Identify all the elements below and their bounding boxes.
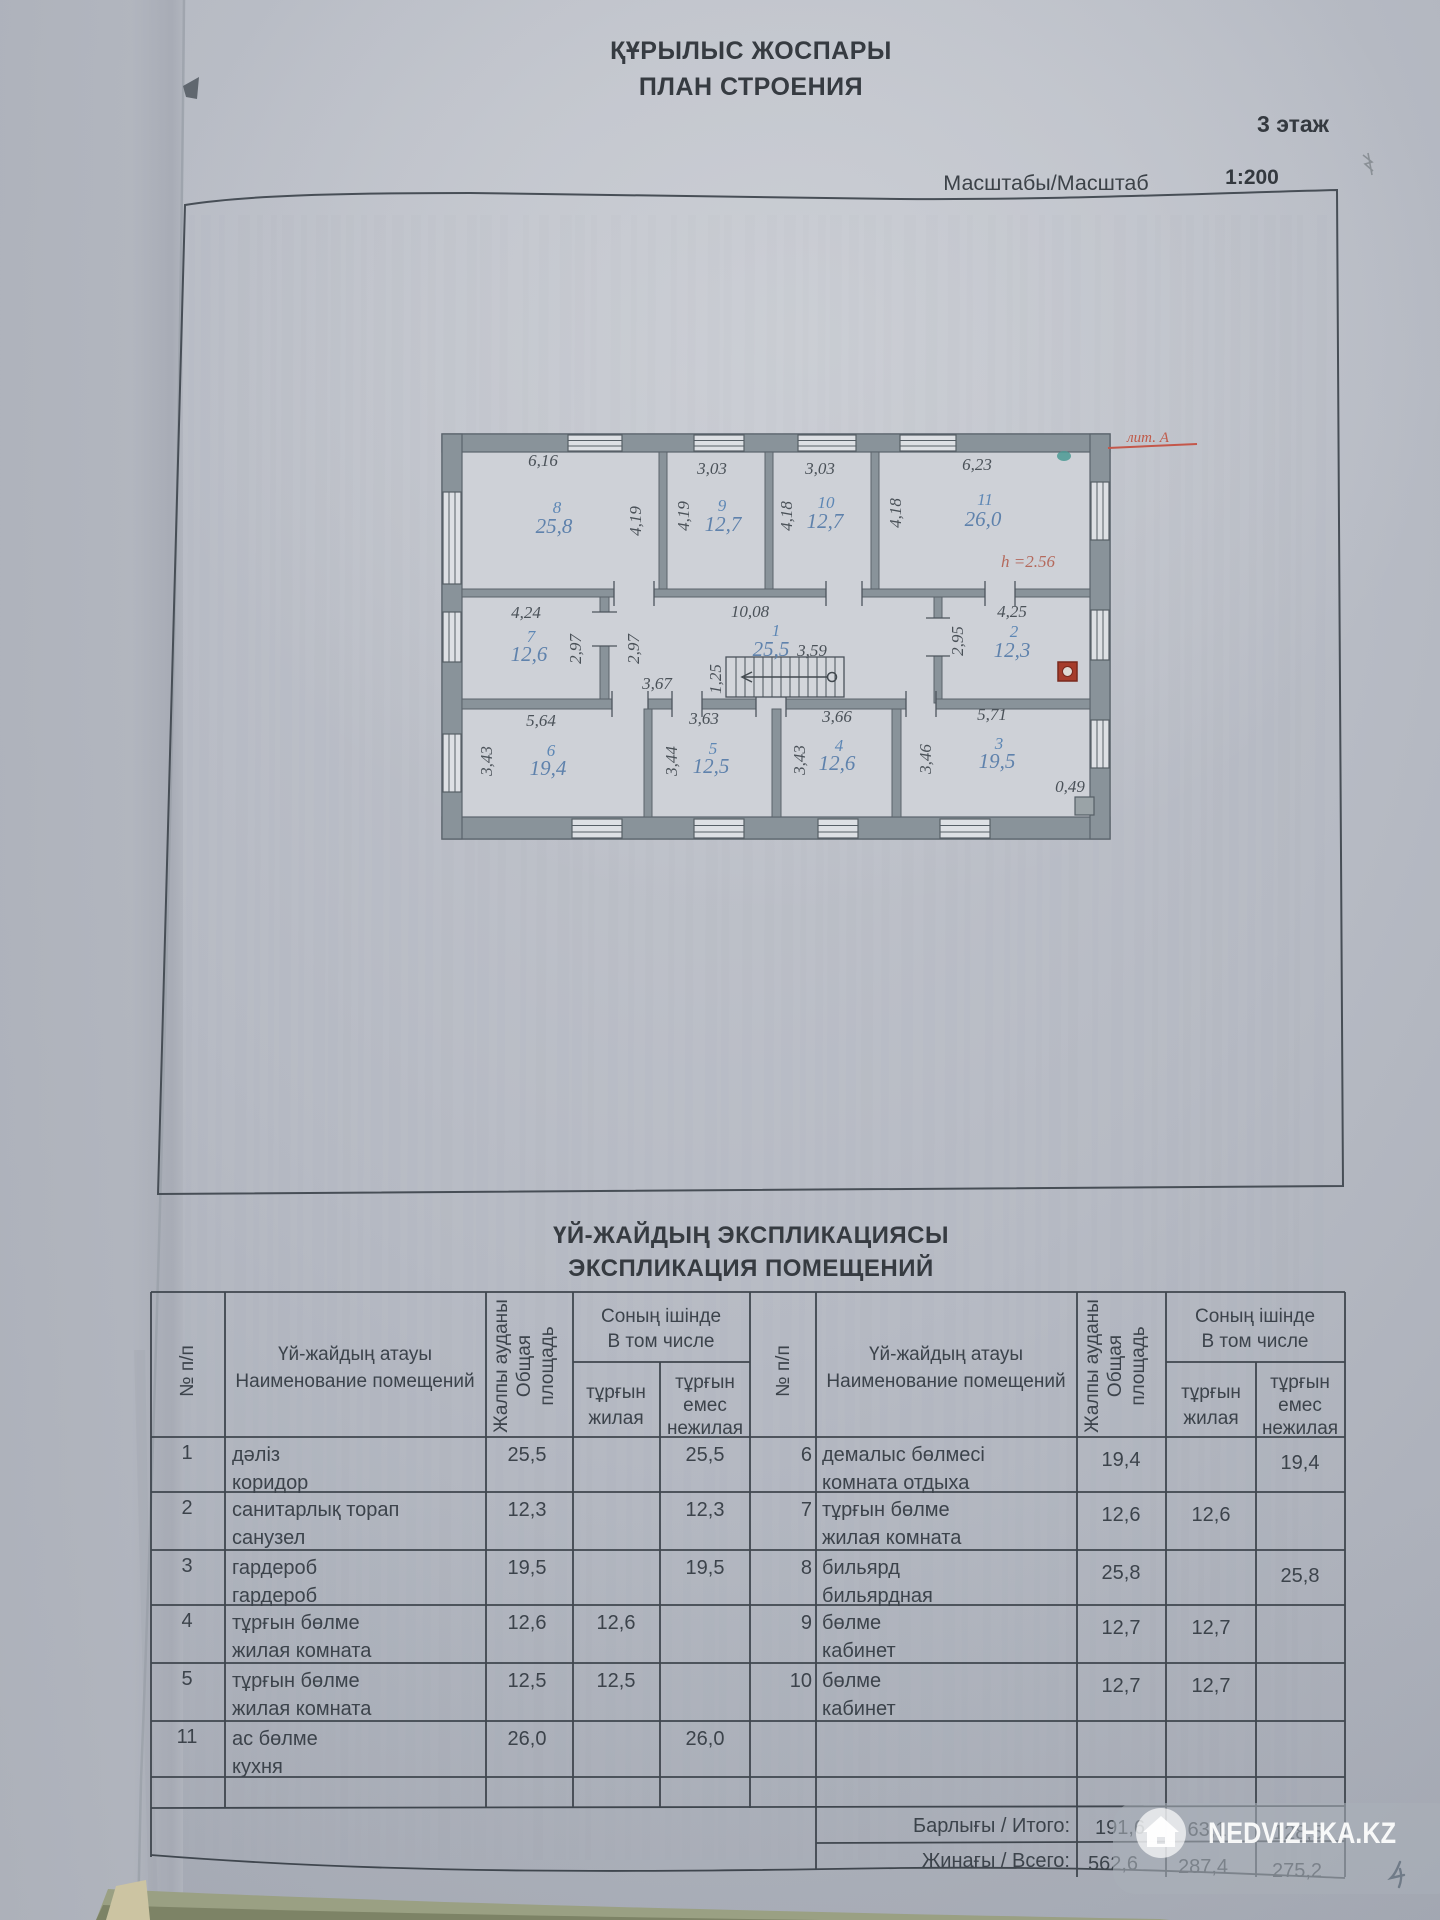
svg-text:кабинет: кабинет: [822, 1640, 896, 1662]
svg-text:В том числе: В том числе: [1201, 1331, 1308, 1352]
svg-text:25,8: 25,8: [536, 514, 573, 538]
svg-text:11: 11: [177, 1726, 198, 1748]
svg-text:Общая: Общая: [514, 1335, 535, 1397]
svg-text:4,18: 4,18: [886, 498, 905, 528]
svg-text:Жалпы ауданы: Жалпы ауданы: [1082, 1299, 1103, 1433]
svg-text:кухня: кухня: [232, 1756, 283, 1778]
svg-text:ЭКСПЛИКАЦИЯ ПОМЕЩЕНИЙ: ЭКСПЛИКАЦИЯ ПОМЕЩЕНИЙ: [568, 1254, 933, 1282]
svg-text:4,19: 4,19: [674, 501, 693, 531]
svg-text:бильярд: бильярд: [822, 1557, 900, 1579]
svg-text:12,6: 12,6: [511, 642, 548, 666]
svg-text:12,5: 12,5: [693, 754, 730, 778]
svg-text:10,08: 10,08: [731, 602, 770, 621]
svg-text:№ п/п: № п/п: [177, 1345, 198, 1397]
svg-text:3,43: 3,43: [477, 746, 496, 777]
svg-text:1,25: 1,25: [706, 664, 725, 694]
svg-text:3,63: 3,63: [688, 709, 719, 728]
svg-text:тұрғын: тұрғын: [1270, 1372, 1330, 1393]
svg-text:лит. А: лит. А: [1126, 430, 1170, 446]
svg-text:тұрғын: тұрғын: [1181, 1382, 1241, 1403]
svg-text:26,0: 26,0: [965, 507, 1002, 531]
svg-text:6,23: 6,23: [962, 455, 992, 474]
svg-text:2: 2: [181, 1497, 192, 1519]
svg-text:емес: емес: [683, 1395, 727, 1416]
svg-text:25,5: 25,5: [508, 1444, 547, 1466]
svg-text:тұрғын: тұрғын: [675, 1372, 735, 1393]
svg-text:тұрғын бөлме: тұрғын бөлме: [822, 1499, 950, 1521]
svg-text:Үй-жайдың атауы: Үй-жайдың атауы: [278, 1344, 432, 1365]
svg-text:19,5: 19,5: [686, 1557, 725, 1579]
svg-text:3,59: 3,59: [796, 641, 827, 660]
svg-text:12,3: 12,3: [686, 1499, 725, 1521]
svg-text:2,97: 2,97: [566, 633, 585, 664]
svg-text:ҮЙ-ЖАЙДЫҢ ЭКСПЛИКАЦИЯСЫ: ҮЙ-ЖАЙДЫҢ ЭКСПЛИКАЦИЯСЫ: [553, 1221, 949, 1249]
svg-text:Соның ішінде: Соның ішінде: [601, 1306, 721, 1327]
svg-text:тұрғын бөлме: тұрғын бөлме: [232, 1612, 360, 1634]
svg-text:1: 1: [181, 1442, 192, 1464]
svg-text:26,0: 26,0: [508, 1728, 547, 1750]
svg-text:санитарлық торап: санитарлық торап: [232, 1499, 399, 1521]
svg-text:жилая комната: жилая комната: [822, 1527, 962, 1549]
svg-text:26,0: 26,0: [686, 1728, 725, 1750]
svg-text:h =2.56: h =2.56: [1001, 552, 1055, 571]
svg-text:12,7: 12,7: [1102, 1617, 1141, 1639]
svg-text:12,6: 12,6: [1102, 1504, 1141, 1526]
svg-text:комната отдыха: комната отдыха: [822, 1472, 970, 1494]
svg-text:Барлығы / Итого:: Барлығы / Итого:: [913, 1815, 1070, 1837]
svg-text:19,5: 19,5: [979, 749, 1016, 773]
svg-text:гардероб: гардероб: [232, 1585, 317, 1607]
svg-text:5: 5: [181, 1668, 192, 1690]
svg-text:бильярдная: бильярдная: [822, 1585, 933, 1607]
svg-text:3: 3: [181, 1555, 192, 1577]
svg-text:19,4: 19,4: [1281, 1452, 1320, 1474]
svg-text:тұрғын: тұрғын: [586, 1382, 646, 1403]
svg-text:гардероб: гардероб: [232, 1557, 317, 1579]
svg-text:12,7: 12,7: [807, 509, 845, 533]
svg-text:коридор: коридор: [232, 1472, 308, 1494]
svg-text:10: 10: [790, 1670, 812, 1692]
svg-text:12,6: 12,6: [819, 751, 856, 775]
svg-text:жилая: жилая: [588, 1408, 643, 1429]
svg-text:В том числе: В том числе: [607, 1331, 714, 1352]
svg-text:6,16: 6,16: [528, 451, 558, 470]
svg-text:Үй-жайдың атауы: Үй-жайдың атауы: [869, 1344, 1023, 1365]
svg-text:0,49: 0,49: [1055, 777, 1085, 796]
svg-text:5,64: 5,64: [526, 711, 556, 730]
svg-text:12,7: 12,7: [1192, 1617, 1231, 1639]
svg-text:25,8: 25,8: [1102, 1562, 1141, 1584]
svg-text:Наименование помещений: Наименование помещений: [235, 1371, 474, 1392]
svg-text:жилая комната: жилая комната: [232, 1640, 372, 1662]
svg-text:кабинет: кабинет: [822, 1698, 896, 1720]
svg-text:3,66: 3,66: [821, 707, 852, 726]
svg-text:санузел: санузел: [232, 1527, 305, 1549]
svg-text:нежилая: нежилая: [667, 1418, 743, 1439]
svg-text:12,6: 12,6: [508, 1612, 547, 1634]
svg-text:демалыс бөлмесі: демалыс бөлмесі: [822, 1444, 985, 1466]
svg-text:5,71: 5,71: [977, 705, 1007, 724]
svg-text:3 этаж: 3 этаж: [1257, 111, 1330, 137]
svg-text:4,19: 4,19: [626, 506, 645, 536]
svg-text:нежилая: нежилая: [1262, 1418, 1338, 1439]
svg-text:12,5: 12,5: [508, 1670, 547, 1692]
svg-text:Общая: Общая: [1105, 1335, 1126, 1397]
svg-text:NEDVIZHKA.KZ: NEDVIZHKA.KZ: [1208, 1817, 1396, 1850]
svg-text:4,24: 4,24: [511, 603, 541, 622]
svg-text:4,18: 4,18: [777, 501, 796, 531]
svg-text:ПЛАН СТРОЕНИЯ: ПЛАН СТРОЕНИЯ: [639, 73, 863, 101]
svg-text:25,5: 25,5: [753, 637, 790, 661]
svg-text:жилая комната: жилая комната: [232, 1698, 372, 1720]
svg-text:Наименование помещений: Наименование помещений: [826, 1371, 1065, 1392]
svg-text:площадь: площадь: [1128, 1326, 1149, 1405]
svg-text:3,44: 3,44: [662, 746, 681, 777]
svg-text:Соның ішінде: Соның ішінде: [1195, 1306, 1315, 1327]
svg-text:тұрғын бөлме: тұрғын бөлме: [232, 1670, 360, 1692]
svg-text:дәліз: дәліз: [232, 1444, 280, 1466]
svg-text:12,7: 12,7: [1102, 1675, 1141, 1697]
svg-text:емес: емес: [1278, 1395, 1322, 1416]
svg-text:2,97: 2,97: [624, 633, 643, 664]
svg-text:19,4: 19,4: [1102, 1449, 1141, 1471]
svg-text:19,5: 19,5: [508, 1557, 547, 1579]
svg-text:3,67: 3,67: [641, 674, 673, 693]
svg-text:ас бөлме: ас бөлме: [232, 1728, 318, 1750]
svg-text:8: 8: [801, 1557, 812, 1579]
svg-text:Масштабы/Масштаб: Масштабы/Масштаб: [943, 171, 1148, 195]
svg-text:3,43: 3,43: [790, 745, 809, 776]
svg-text:12,3: 12,3: [508, 1499, 547, 1521]
svg-text:25,5: 25,5: [686, 1444, 725, 1466]
svg-text:12,6: 12,6: [597, 1612, 636, 1634]
svg-text:№ п/п: № п/п: [773, 1345, 794, 1397]
svg-text:площадь: площадь: [537, 1326, 558, 1405]
svg-text:12,7: 12,7: [1192, 1675, 1231, 1697]
svg-text:12,3: 12,3: [994, 638, 1031, 662]
svg-text:12,5: 12,5: [597, 1670, 636, 1692]
svg-text:9: 9: [801, 1612, 812, 1634]
svg-text:жилая: жилая: [1183, 1408, 1238, 1429]
svg-text:ҚҰРЫЛЫС ЖОСПАРЫ: ҚҰРЫЛЫС ЖОСПАРЫ: [610, 37, 892, 65]
svg-text:12,7: 12,7: [705, 512, 743, 536]
svg-text:2,95: 2,95: [948, 626, 967, 656]
svg-text:12,6: 12,6: [1192, 1504, 1231, 1526]
svg-text:4,25: 4,25: [997, 602, 1027, 621]
svg-text:1:200: 1:200: [1225, 166, 1279, 189]
svg-text:25,8: 25,8: [1281, 1565, 1320, 1587]
svg-text:Жинағы / Всего:: Жинағы / Всего:: [922, 1850, 1070, 1872]
svg-text:7: 7: [801, 1499, 812, 1521]
svg-text:Жалпы ауданы: Жалпы ауданы: [491, 1299, 512, 1433]
svg-text:бөлме: бөлме: [822, 1612, 881, 1634]
svg-text:3,03: 3,03: [804, 459, 835, 478]
svg-text:бөлме: бөлме: [822, 1670, 881, 1692]
svg-text:6: 6: [801, 1444, 812, 1466]
svg-text:3,03: 3,03: [696, 459, 727, 478]
svg-text:3,46: 3,46: [916, 744, 935, 775]
svg-text:19,4: 19,4: [530, 756, 567, 780]
svg-text:4: 4: [181, 1610, 192, 1632]
